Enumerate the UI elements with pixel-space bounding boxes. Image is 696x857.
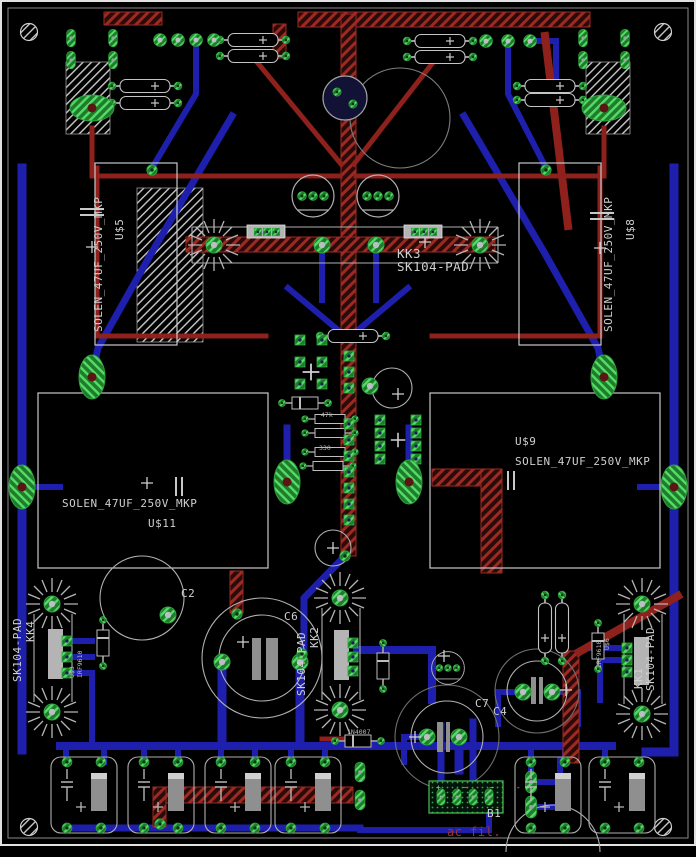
heatsink-kk4[interactable] [26, 578, 78, 738]
label-q2-ref: U$6 [604, 638, 611, 650]
label-u11-part: SOLEN_47UF_250V_MKP [62, 498, 197, 510]
label-u5-ref: U$5 [114, 219, 126, 240]
label-ac-fil: ac fil. [447, 826, 501, 838]
label-c4: C4 [493, 706, 507, 718]
label-kk2-ref: KK2 [309, 627, 321, 648]
label-u5-part: SOLEN_47UF_250V_MKP [93, 197, 105, 332]
label-d1-part: 1N4007 [347, 729, 370, 736]
label-kk1-part: SK104-PAD [645, 627, 657, 691]
label-c6: C6 [284, 611, 298, 623]
label-kk2-part: SK104-PAD [296, 632, 308, 696]
label-u11-ref: U$11 [148, 518, 177, 530]
label-u8-part: SOLEN_47UF_250V_MKP [603, 197, 615, 332]
label-r2-val: 330 [319, 445, 331, 452]
label-u8-ref: U$8 [625, 219, 637, 240]
label-c7: C7 [475, 698, 489, 710]
pcb-editor-canvas[interactable]: SOLEN_47UF_250V_MKP U$5 SOLEN_47UF_250V_… [0, 0, 696, 857]
label-r1-val: 47k [321, 412, 333, 419]
filmcap-u11 [38, 393, 268, 568]
label-u9-part: SOLEN_47UF_250V_MKP [515, 456, 650, 468]
label-b1: B1 [487, 808, 501, 820]
label-q2-part: IRF9610 [596, 641, 603, 668]
label-u9-ref: U$9 [515, 436, 536, 448]
label-kk4-ref: KK4 [25, 621, 37, 642]
label-b1-marks: + ~ ~ - [436, 782, 529, 794]
label-kk3-part: SK104-PAD [397, 261, 469, 273]
label-kk4-part: SK104-PAD [12, 618, 24, 682]
label-c2: C2 [181, 588, 195, 600]
label-q1-ref: U$3 [69, 666, 76, 678]
label-q1-part: IRF9610 [77, 651, 84, 678]
